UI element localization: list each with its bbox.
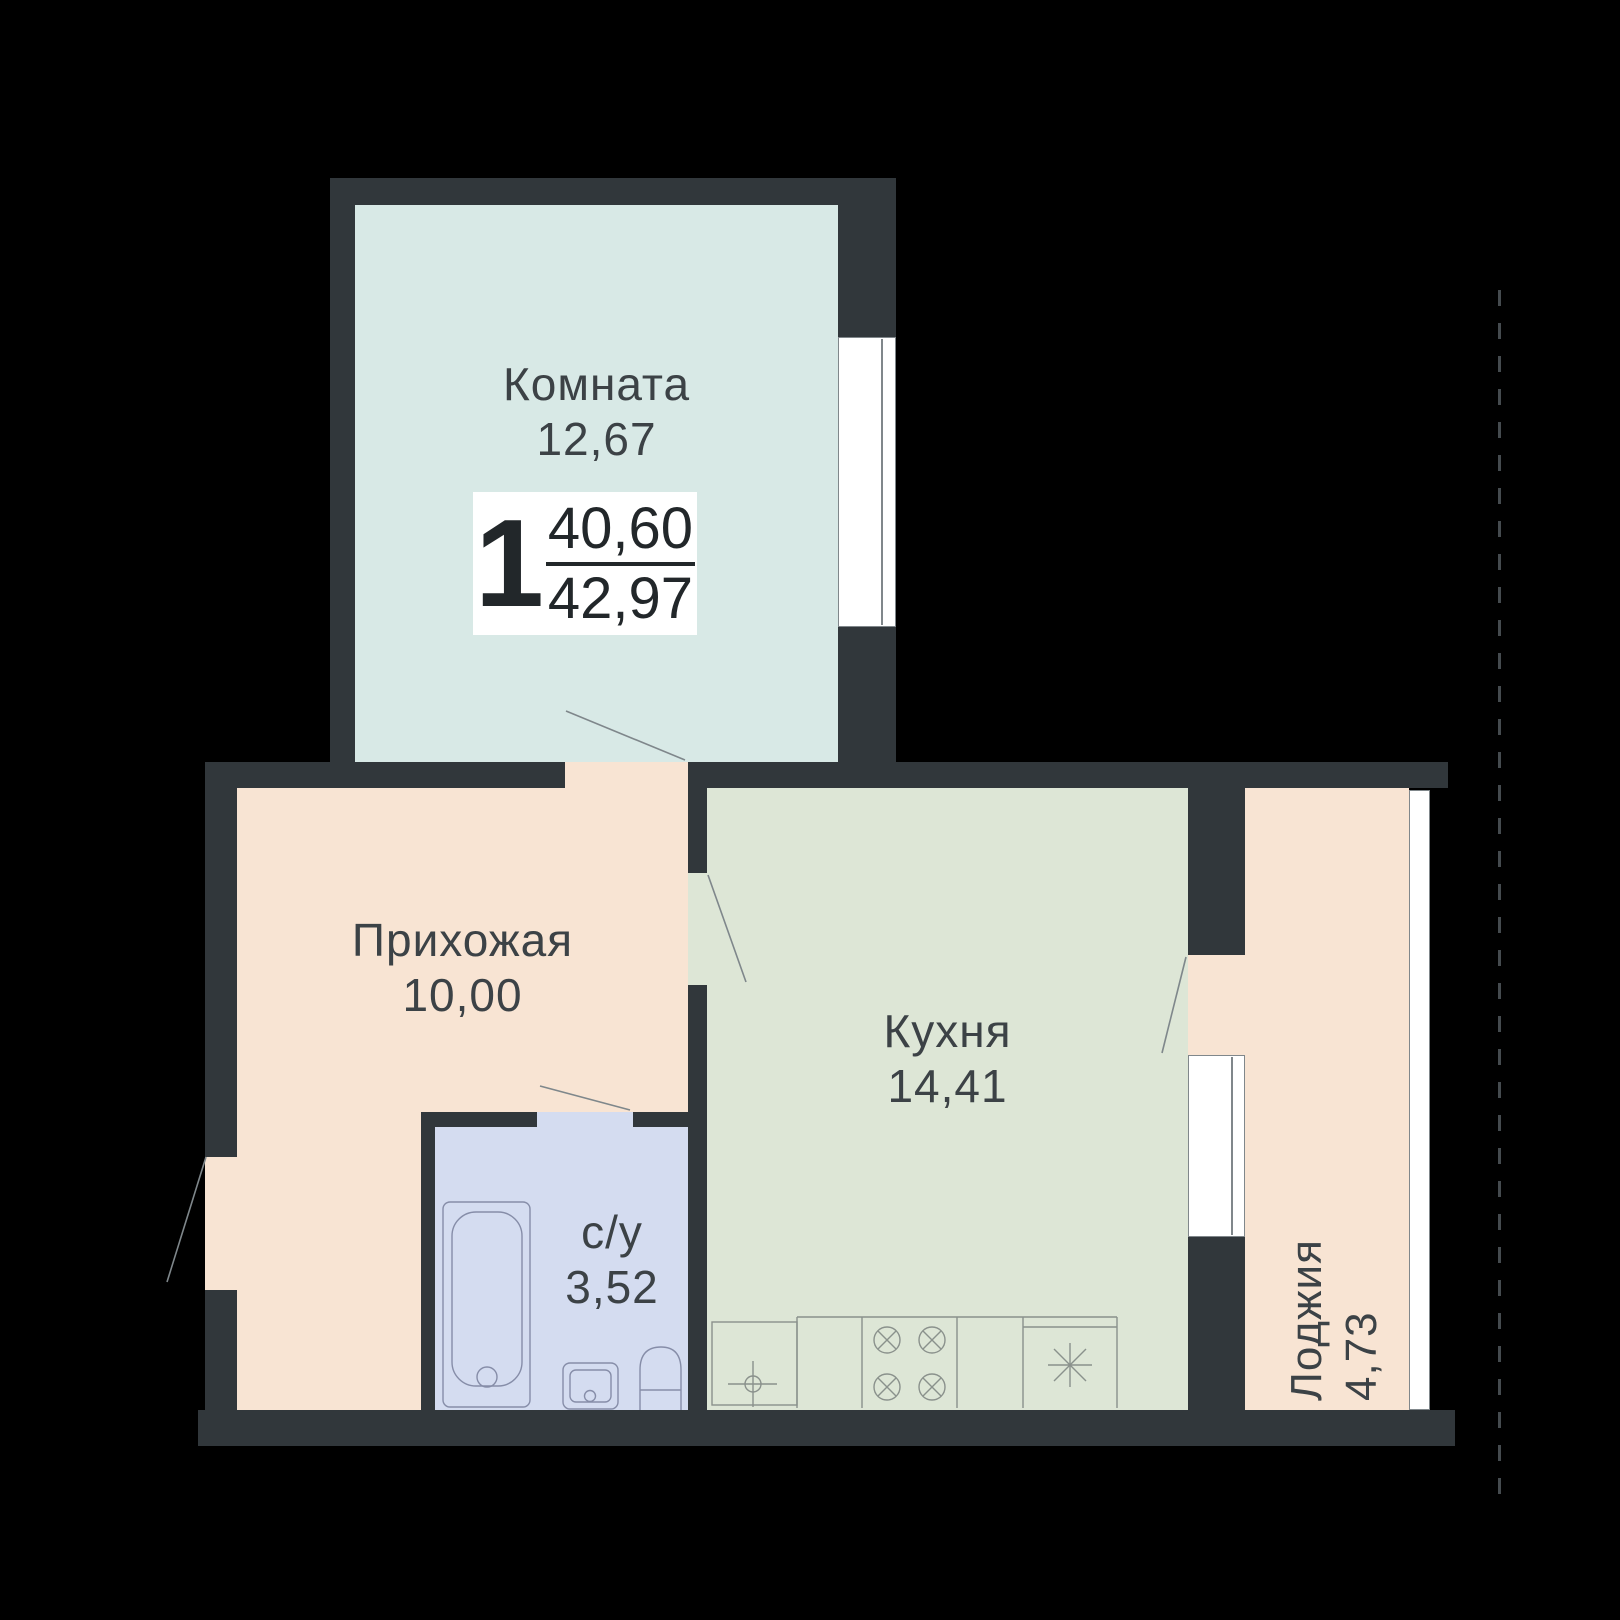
label-kitchen: Кухня 14,41 (707, 1004, 1188, 1114)
label-bathroom: с/у 3,52 (512, 1205, 712, 1315)
label-living-name: Комната (355, 357, 838, 412)
label-loggia-area: 4,73 (1334, 1191, 1389, 1401)
snowflake-icon (1048, 1343, 1092, 1387)
unit-total-area: 42,97 (546, 566, 695, 630)
label-hallway: Прихожая 10,00 (237, 913, 688, 1023)
unit-rooms-count: 1 (475, 514, 542, 614)
fridge-icon (1023, 1327, 1117, 1387)
door-swing-living (566, 711, 685, 760)
label-loggia: Лоджия 4,73 (1279, 1191, 1389, 1401)
unit-info-badge: 1 40,60 42,97 (473, 492, 697, 635)
label-hallway-area: 10,00 (237, 968, 688, 1023)
door-swing-kitchen (708, 875, 746, 982)
label-living-area: 12,67 (355, 412, 838, 467)
door-swing-entrance (167, 1157, 206, 1282)
toilet-icon (640, 1347, 681, 1410)
unit-areas: 40,60 42,97 (546, 498, 695, 630)
label-kitchen-area: 14,41 (707, 1059, 1188, 1114)
kitchen-counter (797, 1317, 1117, 1408)
kitchen-sink-icon (712, 1322, 797, 1407)
label-bathroom-area: 3,52 (512, 1260, 712, 1315)
floor-plan: Комната 12,67 Прихожая 10,00 Кухня 14,41… (0, 0, 1620, 1620)
stove-4-burner-icon (874, 1327, 945, 1400)
label-bathroom-name: с/у (512, 1205, 712, 1260)
label-loggia-name: Лоджия (1279, 1191, 1334, 1401)
bath-sink-icon (563, 1363, 618, 1409)
label-kitchen-name: Кухня (707, 1004, 1188, 1059)
door-swing-bathroom (540, 1086, 630, 1110)
label-living: Комната 12,67 (355, 357, 838, 467)
unit-living-area: 40,60 (546, 498, 695, 566)
label-hallway-name: Прихожая (237, 913, 688, 968)
